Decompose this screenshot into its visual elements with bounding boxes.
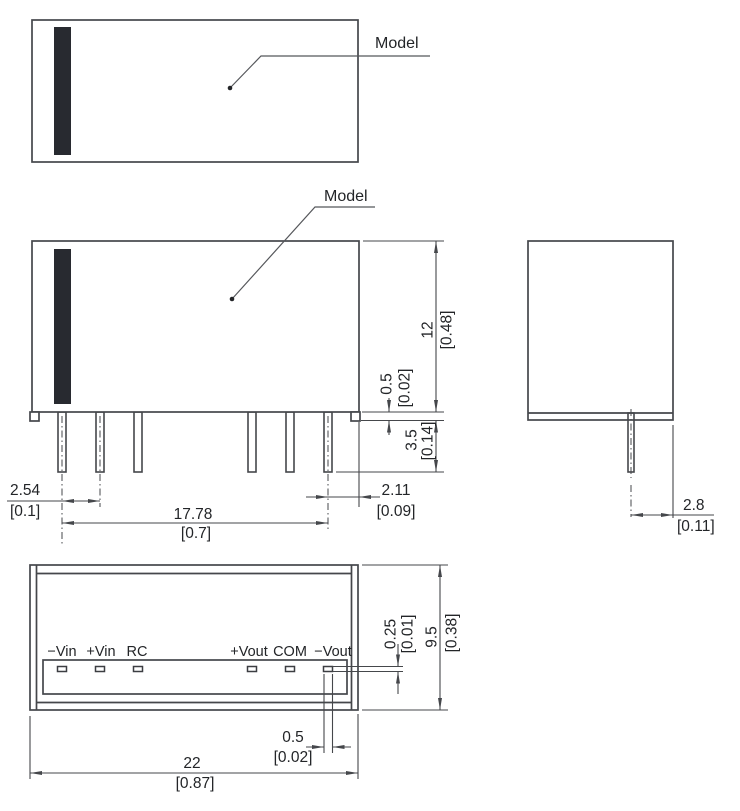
- pin-label: RC: [127, 644, 148, 660]
- dim-inch: [0.48]: [438, 311, 455, 350]
- front-view-body: [32, 241, 359, 412]
- dim-mm: 12: [419, 321, 436, 338]
- pin-label: +Vout: [230, 644, 268, 660]
- top-view-body: [32, 20, 358, 162]
- front-view-pins: [58, 412, 332, 472]
- pin: [248, 412, 256, 472]
- dim-mm: 9.5: [423, 626, 440, 648]
- model-label: Model: [375, 35, 419, 52]
- side-view-body: [528, 241, 673, 420]
- dim-mm: 0.25: [382, 619, 399, 649]
- pin-label: +Vin: [86, 644, 115, 660]
- mechanical-drawing-page: Model Model: [0, 0, 740, 811]
- dim-inch: [0.01]: [399, 615, 416, 654]
- dim-pin-to-edge: 2.11 [0.09]: [306, 422, 415, 520]
- pin: [134, 412, 142, 472]
- pin-pad: [286, 667, 295, 672]
- drawing-canvas: Model Model: [0, 0, 740, 811]
- leader-dot: [230, 297, 235, 302]
- pin-label: −Vout: [314, 644, 352, 660]
- pin-pad: [96, 667, 105, 672]
- pin-pad: [134, 667, 143, 672]
- bottom-view-body: [30, 565, 358, 710]
- bottom-view: −Vin +Vin RC +Vout COM −Vout 0.25 [0.01]…: [30, 565, 460, 792]
- pin-pad: [58, 667, 67, 672]
- dim-pin-pitch: 2.54 [0.1]: [7, 482, 100, 520]
- dim-inch: [0.14]: [419, 422, 436, 461]
- dim-inch: [0.02]: [274, 749, 313, 766]
- dim-inch: [0.02]: [396, 369, 413, 408]
- dim-mm: 17.78: [174, 506, 213, 523]
- pin: [286, 412, 294, 472]
- standoff-bump-left: [30, 412, 39, 421]
- pin-label: COM: [273, 644, 307, 660]
- dim-mm: 2.54: [10, 482, 41, 499]
- front-view: Model 12 [0.48] 0.5 [0.02] 3.5 [0.14]: [7, 188, 455, 546]
- dim-inch: [0.87]: [176, 775, 215, 792]
- pin-pad: [248, 667, 257, 672]
- side-view: 2.8 [0.11]: [528, 241, 715, 535]
- top-view-polarity-stripe: [54, 27, 71, 155]
- dim-pin-length: 3.5 [0.14]: [336, 421, 444, 473]
- top-view: Model: [32, 20, 430, 162]
- pin-pad: [324, 667, 333, 672]
- dim-inch: [0.09]: [377, 503, 416, 520]
- dim-inch: [0.11]: [677, 518, 715, 535]
- dim-mm: 2.11: [381, 482, 410, 499]
- dim-mm: 0.5: [282, 729, 304, 746]
- model-label: Model: [324, 188, 368, 205]
- dim-inch: [0.1]: [10, 503, 40, 520]
- pin-label: −Vin: [47, 644, 76, 660]
- dim-inch: [0.7]: [181, 525, 211, 542]
- front-view-polarity-stripe: [54, 249, 71, 404]
- dim-mm: 3.5: [403, 429, 420, 451]
- dim-mm: 0.5: [378, 373, 395, 395]
- dim-inch: [0.38]: [443, 614, 460, 653]
- dim-mm: 22: [183, 755, 200, 772]
- dim-pin-row-span: 17.78 [0.7]: [62, 506, 328, 542]
- standoff-bump-right: [351, 412, 360, 421]
- dim-mm: 2.8: [683, 497, 705, 514]
- leader-dot: [228, 86, 233, 91]
- dim-side-pin-to-edge: 2.8 [0.11]: [631, 425, 715, 535]
